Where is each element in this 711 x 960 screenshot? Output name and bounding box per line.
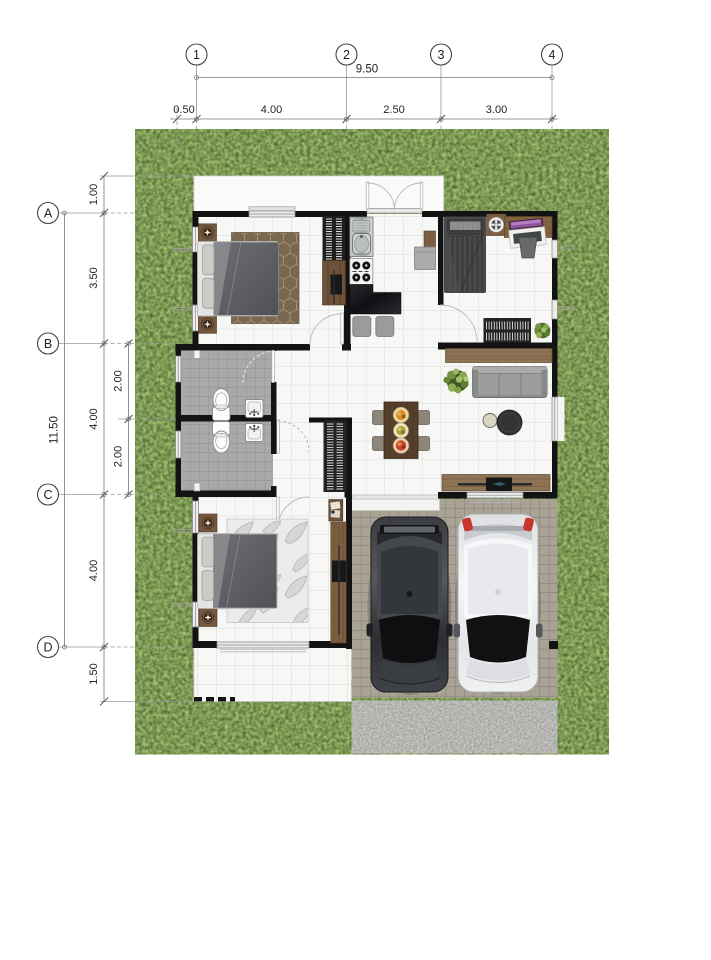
svg-text:2: 2 bbox=[343, 48, 350, 62]
svg-text:B: B bbox=[44, 337, 52, 351]
svg-text:3.00: 3.00 bbox=[486, 104, 507, 116]
svg-text:4.00: 4.00 bbox=[261, 104, 282, 116]
svg-text:2.00: 2.00 bbox=[113, 446, 125, 467]
svg-text:A: A bbox=[44, 207, 53, 221]
svg-text:1.50: 1.50 bbox=[88, 663, 100, 684]
svg-text:1: 1 bbox=[193, 48, 200, 62]
svg-text:3: 3 bbox=[438, 48, 445, 62]
svg-text:C: C bbox=[43, 488, 52, 502]
svg-text:4.00: 4.00 bbox=[88, 560, 100, 581]
svg-text:4.00: 4.00 bbox=[88, 408, 100, 429]
svg-text:0.50: 0.50 bbox=[173, 104, 194, 116]
svg-text:1.00: 1.00 bbox=[88, 184, 100, 205]
svg-text:3.50: 3.50 bbox=[88, 267, 100, 288]
svg-text:11.50: 11.50 bbox=[49, 416, 61, 444]
svg-text:D: D bbox=[43, 641, 52, 655]
svg-text:2.50: 2.50 bbox=[383, 104, 404, 116]
svg-text:9.50: 9.50 bbox=[356, 64, 378, 76]
svg-text:4: 4 bbox=[549, 48, 556, 62]
svg-text:2.00: 2.00 bbox=[113, 370, 125, 391]
